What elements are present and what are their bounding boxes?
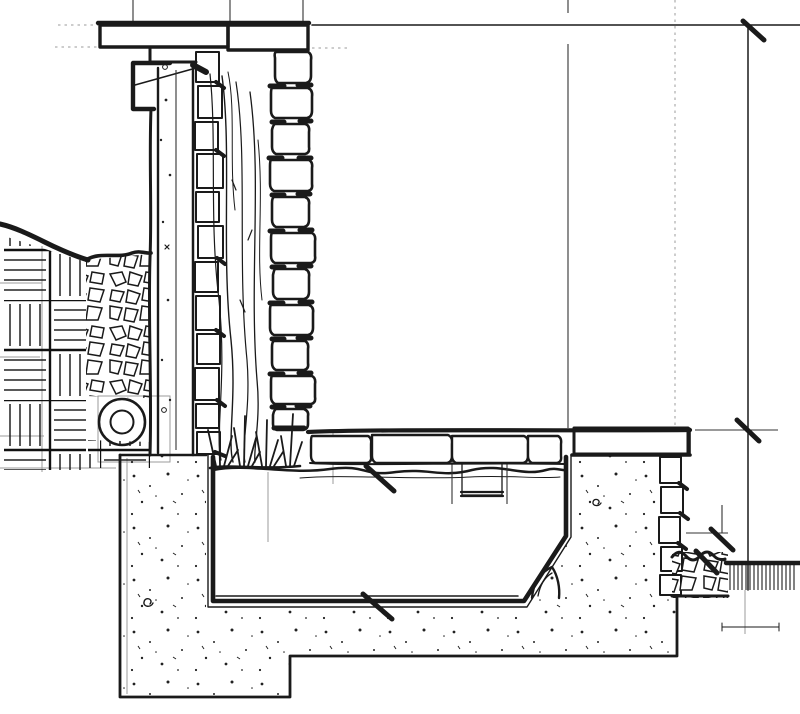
coping-bottom-line <box>310 463 564 464</box>
coping-top-line <box>308 430 690 432</box>
drainage-gravel <box>86 254 150 398</box>
section-sketch: Hand-drawn ink section detail: stone-fac… <box>0 0 800 714</box>
soil-basket-weave <box>4 236 86 470</box>
sketch-page: Hand-drawn ink section detail: stone-fac… <box>0 0 800 714</box>
stem-left-face <box>149 109 151 455</box>
lower-grade-hatch <box>727 564 795 590</box>
